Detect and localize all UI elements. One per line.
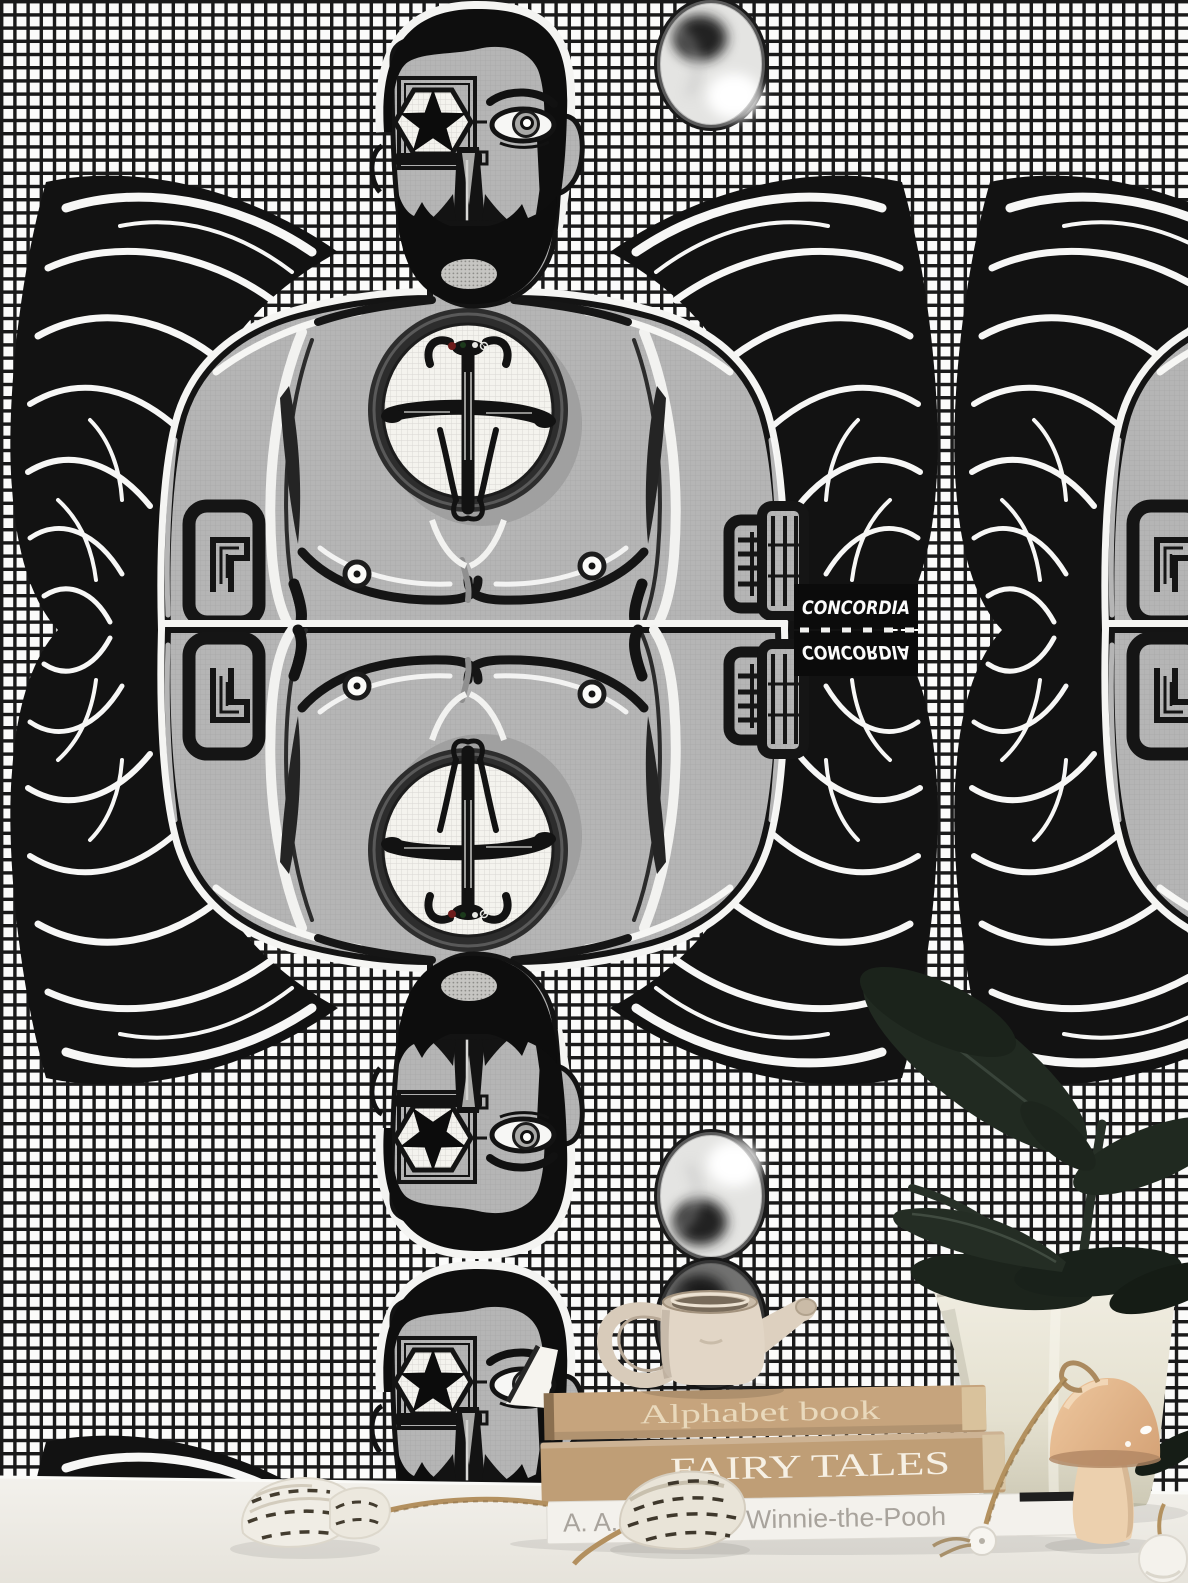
wallpaper-mockup-photo: CONCORDIA: [0, 0, 1188, 1583]
wallpaper-tile-center: [10, 0, 937, 1260]
book-spine-text: Alphabet book: [640, 1395, 881, 1430]
book-fairy-tales: FAIRY TALES: [540, 1431, 1005, 1503]
scene-canvas: CONCORDIA: [0, 0, 1188, 1583]
book-title-text: Winnie-the-Pooh: [746, 1501, 946, 1534]
